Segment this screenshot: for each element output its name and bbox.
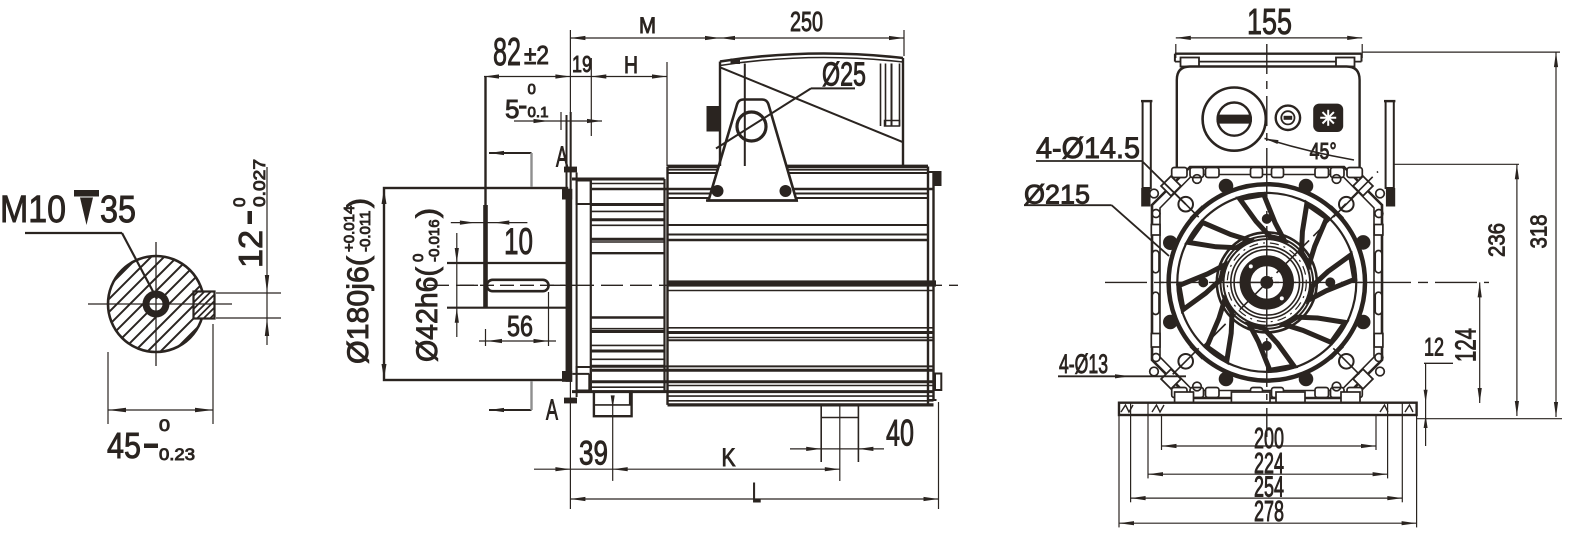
svg-text:0: 0 [159,416,170,435]
svg-text:±2: ±2 [524,40,549,70]
svg-text:L: L [752,477,761,508]
svg-text:): ) [411,208,444,218]
svg-text:56: 56 [507,311,533,343]
svg-text:12: 12 [232,230,269,268]
svg-text:278: 278 [1254,496,1284,528]
svg-text:124: 124 [1451,328,1483,362]
svg-text:0: 0 [410,254,427,262]
svg-text:0.027: 0.027 [250,159,269,207]
svg-text:4-Ø13: 4-Ø13 [1059,349,1108,379]
svg-text:0: 0 [230,198,249,207]
svg-text:M: M [639,13,656,38]
svg-text:318: 318 [1526,215,1552,249]
svg-text:0: 0 [528,81,536,98]
svg-text:4-Ø14.5: 4-Ø14.5 [1036,132,1140,165]
svg-text:M10: M10 [0,189,66,231]
svg-text:35: 35 [100,189,136,231]
svg-text:250: 250 [790,6,823,37]
svg-text:Ø25: Ø25 [822,55,866,92]
svg-text:0.1: 0.1 [528,104,549,121]
svg-text:39: 39 [579,435,608,473]
svg-text:-0.016: -0.016 [426,219,443,262]
svg-text:5: 5 [505,94,519,124]
svg-text:Ø42h6(: Ø42h6( [411,267,444,362]
svg-text:155: 155 [1247,1,1292,42]
svg-text:45°: 45° [1310,138,1337,164]
svg-text:-0.011: -0.011 [357,211,374,252]
svg-text:Ø180j6(: Ø180j6( [342,256,375,364]
svg-text:236: 236 [1484,223,1510,257]
svg-text:40: 40 [886,413,914,454]
svg-text:): ) [342,198,375,208]
svg-text:12: 12 [1424,333,1444,361]
svg-text:45: 45 [107,425,141,466]
svg-text:H: H [624,52,638,79]
svg-text:+0.014: +0.014 [341,206,358,252]
svg-text:A: A [556,141,568,173]
svg-text:10: 10 [504,221,533,262]
svg-text:K: K [722,444,736,472]
svg-text:82: 82 [493,31,521,74]
svg-text:A: A [546,395,558,427]
svg-text:0.23: 0.23 [159,445,195,464]
svg-text:19: 19 [572,51,592,77]
